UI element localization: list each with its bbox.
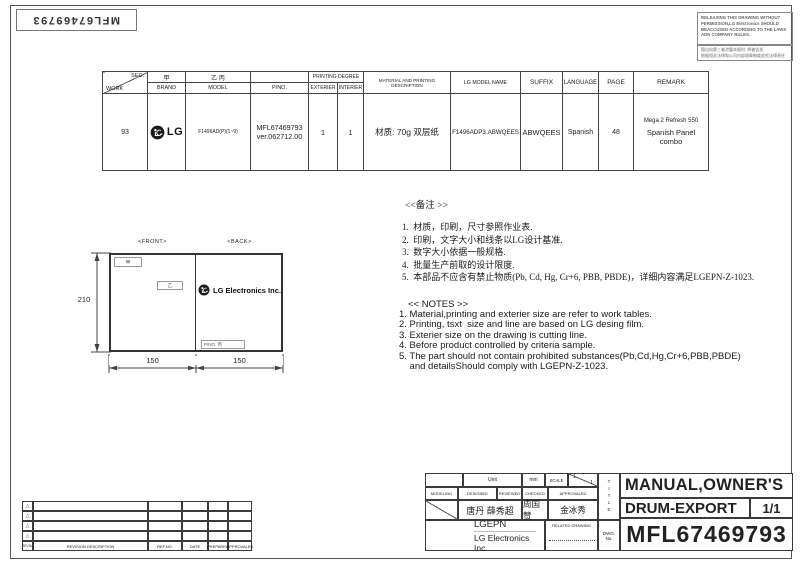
rev-marker-icon: △: [26, 533, 30, 539]
header-printing-degree: PRINTING DEGREE: [309, 72, 364, 83]
row-language: Spanish: [563, 94, 599, 171]
front-label: <FRONT>: [109, 239, 196, 245]
tb-scale-den: 1: [590, 480, 593, 486]
rev-prepared-cell: [208, 511, 228, 521]
rev-marker-cell: △: [22, 511, 33, 521]
rev-approvaled-cell: [228, 521, 252, 531]
release-warning-en-text: RELEASING THIS DRAWING WITHOUT PERMISSIO…: [701, 15, 786, 37]
tb-reviewed-label: REVIEWED: [497, 487, 522, 500]
width-dim-left-value: 150: [109, 356, 196, 365]
tb-dwg-no-label: DWG. No.: [598, 520, 620, 551]
tb-unit-label: Unit: [463, 473, 522, 487]
tb-approvaled-label: APPROVALED: [548, 487, 598, 500]
header-language: LANGUAGE: [563, 72, 599, 94]
row-pno: MFL67469793 ver.062712.00: [251, 94, 309, 171]
tb-unit-value: mm: [522, 473, 545, 487]
row-page: 48: [599, 94, 634, 171]
tb-related-drawing-label: RELATED DRAWING: [552, 523, 590, 528]
notes-cn-header: <<备注 >>: [405, 197, 448, 211]
header-suffix: SUFFIX: [521, 72, 563, 94]
header-brand: BRAND: [148, 83, 186, 94]
yi-tag-box: 乙: [157, 281, 183, 290]
doc-number-rotated: MFL67469793: [32, 14, 120, 26]
row-pno-line2: ver.062712.00: [251, 132, 308, 141]
rev-desc-cell: [33, 511, 148, 521]
header-page: PAGE: [599, 72, 634, 94]
tb-title-vertical-cell: TITLE: [598, 473, 620, 520]
tb-scale-value: 1 1: [568, 473, 598, 487]
tb-company-full: LG Electronics Inc.: [474, 533, 544, 553]
tb-designed-names: 唐丹 薛秀超: [458, 500, 522, 520]
rev-prepared-cell: [208, 531, 228, 541]
row-brand-text: LG: [167, 126, 183, 138]
tb-company-divider: [474, 531, 536, 532]
tb-scale-label: SCALE: [545, 473, 568, 487]
width-dim-right-value: 150: [196, 356, 283, 365]
header-remark: REMARK: [634, 72, 709, 94]
row-material: 材质: 70g 双层纸: [364, 94, 451, 171]
rev-date-cell: [182, 501, 208, 511]
row-work: 93: [103, 94, 148, 171]
pno-tag-box: P/NO. 丙: [201, 340, 245, 349]
rev-header-approvaled: APPROVALED: [228, 541, 252, 551]
header-sec: SEC.: [131, 73, 144, 79]
rev-marker-icon: △: [26, 523, 30, 529]
release-warning-cn-line2: 根据相关法律和公司内部规章制度追究法律责任: [701, 53, 789, 59]
header-blank: [251, 72, 309, 83]
row-pno-line1: MFL67469793: [251, 123, 308, 132]
panel-outline: [109, 253, 283, 352]
tb-title-vertical: TITLE: [607, 479, 612, 514]
row-remark: Mega 2 Refresh 550 Spanish Panel combo: [634, 94, 709, 171]
notes-cn-item: 1. 材质，印刷，尺寸参照作业表.: [402, 221, 792, 234]
rev-marker-icon: △: [26, 513, 30, 519]
tb-checked-name: 周国赞: [522, 500, 548, 520]
header-model: MODEL: [186, 83, 251, 94]
notes-en-list: 1. Material,printing and exterier size a…: [399, 310, 794, 372]
row-lg-model-name: F1496ADP3.ABWQEES: [451, 94, 521, 171]
row-brand: LG: [148, 94, 186, 171]
rev-refno-cell: [148, 521, 182, 531]
rev-marker-cell: △: [22, 531, 33, 541]
jia-tag-box: 甲: [114, 257, 142, 267]
tb-related-drawing-cell: RELATED DRAWING: [545, 520, 598, 551]
notes-cn-item: 5. 本部品不应含有禁止物质(Pb, Cd, Hg, Cr+6, PBB, PB…: [402, 271, 792, 284]
notes-cn-item: 3. 数字大小依据一般规格.: [402, 246, 792, 259]
release-warning-en: RELEASING THIS DRAWING WITHOUT PERMISSIO…: [697, 12, 793, 45]
doc-number-box: MFL67469793: [16, 9, 137, 31]
rev-refno-cell: [148, 531, 182, 541]
rev-approvaled-cell: [228, 501, 252, 511]
tb-blank-cell: [425, 473, 463, 487]
lg-logo-icon-back: [198, 284, 210, 296]
rev-header-refno: REF.NO.: [148, 541, 182, 551]
back-brand-text: LG Electronics Inc.: [213, 286, 281, 295]
drawing-sheet: MFL67469793 RELEASING THIS DRAWING WITHO…: [0, 0, 802, 567]
rev-header-date: DATE: [182, 541, 208, 551]
rev-header-description: REVISION DESCRIPTION: [33, 541, 148, 551]
rev-header-revno: REV.No: [22, 541, 33, 551]
jia-tag: 甲: [125, 259, 130, 266]
row-interier: 1: [338, 94, 364, 171]
header-yi-bing: 乙 丙: [186, 72, 251, 83]
rev-prepared-cell: [208, 521, 228, 531]
rev-prepared-cell: [208, 501, 228, 511]
header-sec-work: SEC. WORK: [103, 72, 148, 94]
row-model: F1496AD(P)(1~9): [186, 94, 251, 171]
header-jia: 甲: [148, 72, 186, 83]
back-branding: LG Electronics Inc.: [197, 282, 282, 298]
notes-cn-item: 2. 印刷，文字大小和线条以LG设计基准.: [402, 234, 792, 247]
tb-company-cell: LGEPN LG Electronics Inc.: [425, 520, 545, 551]
rev-date-cell: [182, 531, 208, 541]
panel-divider: [195, 253, 196, 352]
rev-approvaled-cell: [228, 511, 252, 521]
back-label: <BACK>: [196, 239, 283, 245]
lg-logo-icon: [150, 125, 165, 140]
row-remark-line2: Spanish Panel combo: [643, 128, 699, 146]
rev-date-cell: [182, 521, 208, 531]
rev-marker-cell: △: [22, 501, 33, 511]
tb-title-line2: DRUM-EXPORT: [620, 498, 750, 518]
tb-designed-label: DESIGNED: [458, 487, 497, 500]
tb-modeling-label: MODELING: [425, 487, 458, 500]
notes-cn-item: 4. 批量生产前取的设计限度.: [402, 259, 792, 272]
tb-sheet: 1/1: [750, 498, 793, 518]
header-exterier: EXTERIER: [309, 83, 338, 94]
rev-desc-cell: [33, 521, 148, 531]
row-suffix: ABWQEES: [521, 94, 563, 171]
header-interier: INTERIER: [338, 83, 364, 94]
header-work: WORK: [106, 86, 123, 92]
rev-desc-cell: [33, 501, 148, 511]
header-material: MATERIAL AND PRINTING DESCRIPTION: [364, 72, 451, 94]
rev-desc-cell: [33, 531, 148, 541]
header-pno: P/NO.: [251, 83, 309, 94]
rev-marker-icon: △: [26, 503, 30, 509]
notes-cn-list: 1. 材质，印刷，尺寸参照作业表. 2. 印刷，文字大小和线条以LG设计基准. …: [402, 221, 792, 284]
rev-refno-cell: [148, 501, 182, 511]
rev-date-cell: [182, 511, 208, 521]
pno-tag: P/NO. 丙: [204, 342, 222, 348]
release-warning-cn: 擅自向第三者泄露本图时, 将被告发. 根据相关法律和公司内部规章制度追究法律责任: [697, 45, 793, 61]
spec-table: SEC. WORK 甲 乙 丙 PRINTING DEGREE MATERIAL…: [102, 71, 709, 171]
notes-en-item-cont: and detailsShould comply with LGEPN-Z-10…: [399, 362, 794, 372]
tb-title-line1: MANUAL,OWNER'S: [620, 473, 793, 498]
tb-related-drawing-line: [549, 540, 595, 541]
rev-header-prepared: PREPARED: [208, 541, 228, 551]
tb-approvaled-name: 金冰秀: [548, 500, 598, 520]
row-remark-line1: Mega 2 Refresh 550: [634, 118, 708, 124]
rev-refno-cell: [148, 511, 182, 521]
tb-dwg-no: MFL67469793: [620, 518, 793, 551]
yi-tag: 乙: [167, 282, 172, 289]
tb-company-short: LGEPN: [474, 519, 506, 530]
tb-scale-num: 1: [573, 474, 576, 480]
row-exterier: 1: [309, 94, 338, 171]
height-dim-value: 210: [74, 295, 94, 304]
header-lg-model-name: LG MODEL NAME: [451, 72, 521, 94]
rev-marker-cell: △: [22, 521, 33, 531]
rev-approvaled-cell: [228, 531, 252, 541]
tb-modeling-value: [425, 500, 458, 520]
